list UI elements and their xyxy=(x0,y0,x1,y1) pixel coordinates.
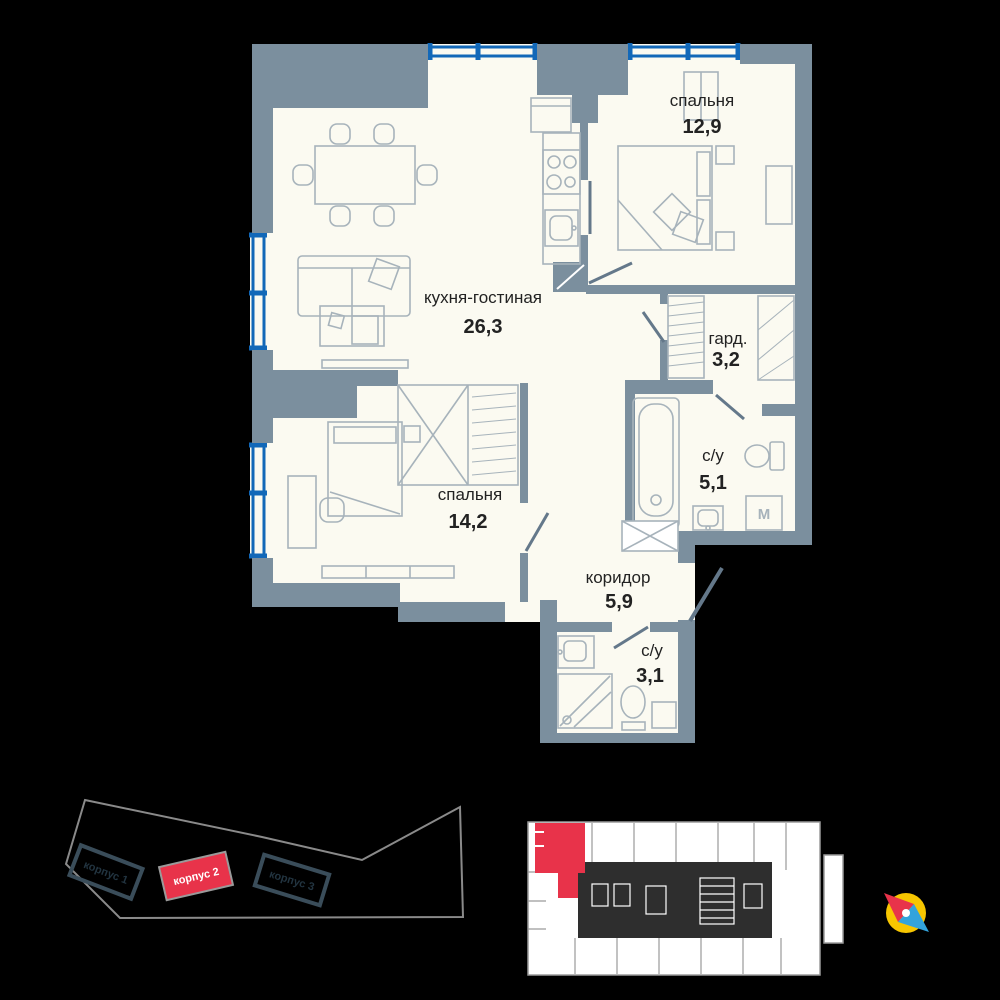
building-korpus-1[interactable]: корпус 1 xyxy=(69,845,142,899)
site-plan: корпус 1 корпус 2 корпус 3 xyxy=(66,800,463,918)
room-label-corridor: коридор xyxy=(586,568,651,587)
window-top-left xyxy=(428,43,537,60)
key-plan-core xyxy=(578,862,772,938)
building-korpus-2[interactable]: корпус 2 xyxy=(159,852,233,900)
floor-plan: M xyxy=(249,43,812,743)
room-area-wardrobe: 3,2 xyxy=(712,349,740,371)
building-korpus-3[interactable]: корпус 3 xyxy=(255,855,329,905)
window-top-right xyxy=(628,43,740,60)
shaft-box-glyph xyxy=(622,521,678,551)
room-label-bedroom-2: спальня xyxy=(438,485,503,504)
scene: M xyxy=(0,0,1000,1000)
compass-icon xyxy=(884,893,929,933)
room-area-bedroom-2: 14,2 xyxy=(449,511,488,533)
room-area-corridor: 5,9 xyxy=(605,591,633,613)
room-area-bedroom-1: 12,9 xyxy=(683,116,722,138)
room-area-bathroom-2: 3,1 xyxy=(636,665,664,687)
room-label-bedroom-1: спальня xyxy=(670,91,735,110)
window-left-upper xyxy=(249,233,267,350)
room-label-wardrobe: гард. xyxy=(709,329,748,348)
page-background: { "colors": { "wall": "#7b8f9e", "wall-d… xyxy=(0,0,1000,1000)
room-area-kitchen-living: 26,3 xyxy=(464,316,503,338)
room-label-kitchen-living: кухня-гостиная xyxy=(424,288,542,307)
window-left-lower xyxy=(249,443,267,558)
key-plan-right-wing xyxy=(824,855,843,943)
room-label-bathroom-2: с/у xyxy=(641,641,663,660)
washing-machine-label: M xyxy=(758,506,771,523)
room-area-bathroom-1: 5,1 xyxy=(699,472,727,494)
key-plan xyxy=(528,822,843,975)
room-label-bathroom-1: с/у xyxy=(702,446,724,465)
